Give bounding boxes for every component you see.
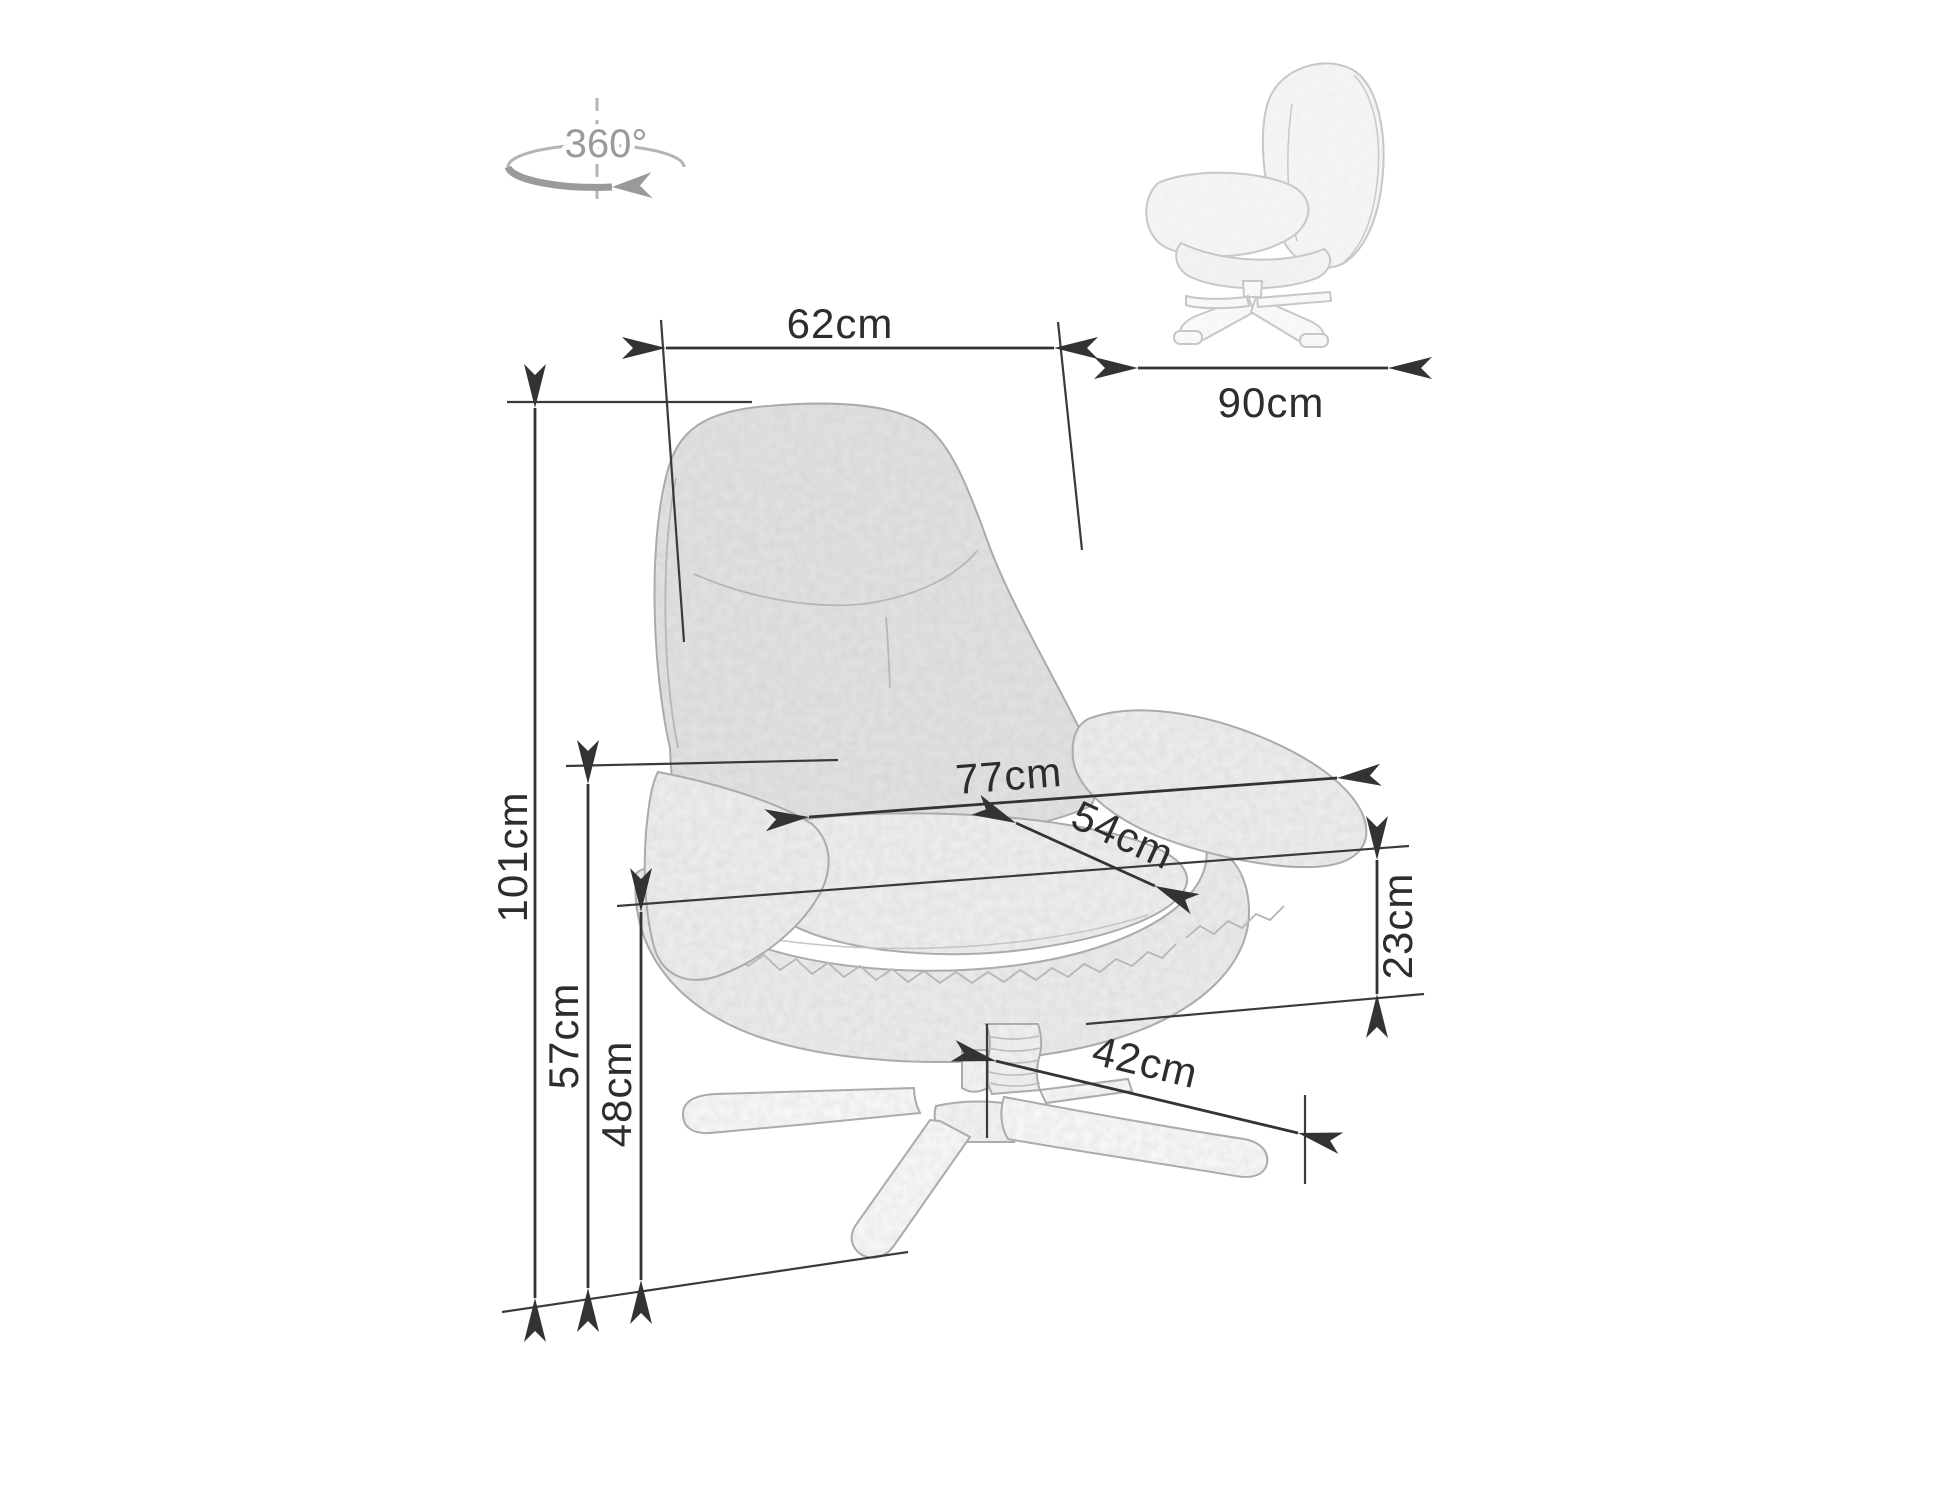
extension-line-backrest-right	[1058, 322, 1082, 550]
side-foot-right	[1300, 334, 1328, 347]
side-foot-left	[1174, 331, 1202, 344]
dim-label-total-width: 77cm	[954, 748, 1064, 803]
base-leg-left	[683, 1088, 920, 1133]
diagram-canvas: 360°	[0, 0, 1946, 1489]
dim-label-armrest-height: 57cm	[540, 983, 587, 1090]
dim-label-cushion-thickness: 23cm	[1374, 873, 1421, 980]
side-column	[1243, 281, 1262, 297]
rotation-label: 360°	[565, 122, 648, 166]
rotation-swivel-arrow-icon: 360°	[508, 98, 684, 207]
armchair-dimension-diagram: 360°	[0, 0, 1946, 1489]
base-leg-right	[1001, 1097, 1267, 1177]
side-base	[1174, 281, 1331, 347]
ground-line	[502, 1252, 908, 1312]
dim-label-depth: 90cm	[1218, 379, 1325, 426]
side-leg-back-right	[1257, 292, 1331, 307]
dim-label-backrest-width: 62cm	[787, 300, 894, 347]
side-leg-back-left	[1186, 296, 1249, 308]
base-leg-front	[852, 1120, 970, 1258]
dim-label-seat-height: 48cm	[593, 1041, 640, 1148]
dim-label-total-height: 101cm	[489, 791, 536, 922]
front-view-chair	[635, 404, 1366, 1258]
side-view-chair	[1146, 63, 1383, 347]
column-cylinder	[962, 1050, 988, 1092]
